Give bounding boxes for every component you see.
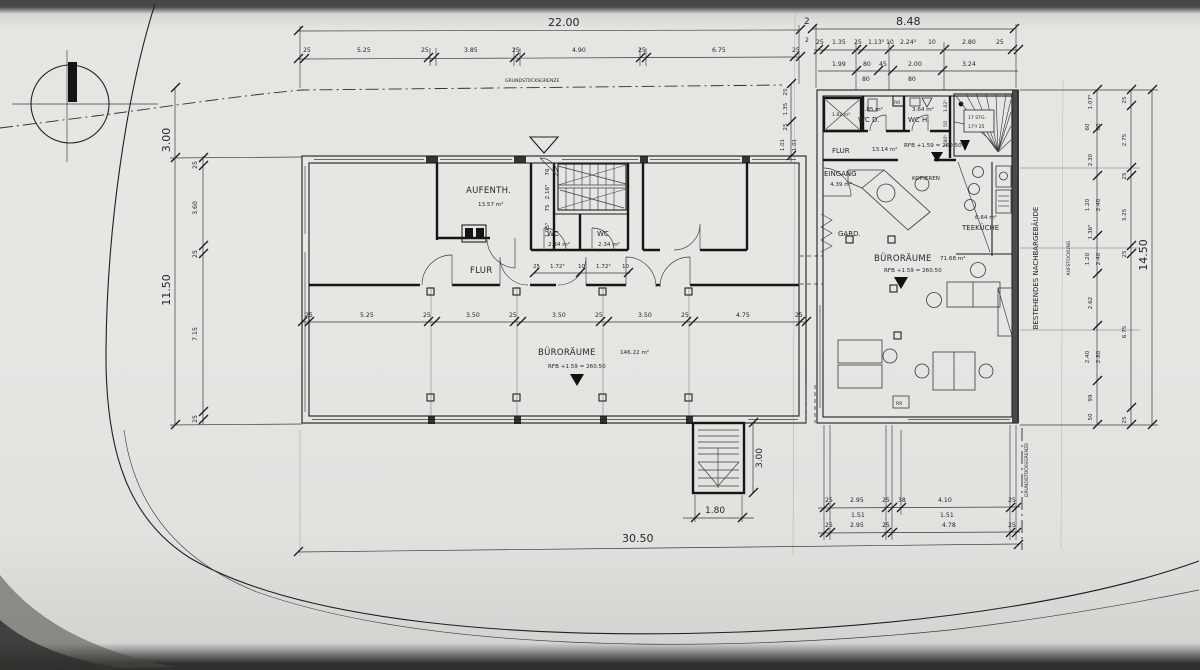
dim-ri-7: 1.20 [1085, 252, 1091, 265]
wc-d-label: WC D. [858, 116, 880, 124]
room-wc2-area: 2.34 m² [598, 241, 620, 248]
dim-3-00-left: 3.00 [160, 128, 173, 153]
level-marker-right [894, 277, 908, 289]
room-buero-right-level: RFB +1.59 = 260.50 [884, 268, 942, 274]
dim-tr3-0: 80 [862, 76, 870, 83]
room-buero-right-area: 71.68 m² [940, 255, 965, 262]
dim-ri-3: 2.30 [1088, 153, 1094, 166]
dim-g-1: 1.35 [783, 102, 789, 115]
dim-c-6: 25 [595, 312, 603, 319]
room-flur-right-area: 13.14 m² [872, 146, 897, 153]
dim-ri-10: 2.40 [1085, 350, 1091, 363]
dim-tl-7: 6.75 [712, 47, 726, 54]
dim-g-3: 1.01 [780, 138, 786, 151]
dim-tl-0: 25 [303, 47, 311, 54]
grenze-top-label: GRUNDSTÜCKSGRENZE [505, 77, 560, 84]
exit-stair: 3.00 1.80 [683, 418, 765, 522]
dim-ro-6: 25 [1122, 416, 1128, 424]
dim-ss-3: 1.95⁵ [544, 223, 551, 238]
dim-br1-0: 25 [825, 497, 833, 504]
dim-tl-1: 5.25 [357, 47, 371, 54]
room-eingang: EINGANG [824, 170, 857, 178]
dim-ro-3: 3.25 [1122, 208, 1128, 221]
neighbor-building-label: BESTEHENDES NACHBARGEBÄUDE [1031, 207, 1040, 330]
teekueche: 6.64 m² TEEKÜCHE [956, 162, 1012, 256]
dim-22-00: 22.00 [548, 16, 580, 29]
dim-br1-1: 2.95 [850, 497, 864, 504]
dim-sr-0: 1.62⁵ [943, 100, 949, 112]
dim-ri-11: 2.80 [1096, 350, 1102, 363]
paper-artifacts [0, 0, 1200, 670]
room-buero-left-level: RFB +1.59 = 260.50 [548, 364, 606, 370]
main-stair-left [558, 164, 626, 210]
dim-br2-2: 25 [882, 522, 890, 529]
floor-plan-photo: GRUNDSTÜCKSGRENZE 22.00 2 2 8.48 25 5.25… [0, 0, 1200, 670]
dim-ri-2: 60 [1096, 123, 1102, 131]
dim-tr-1: 1.35 [832, 39, 846, 46]
room-teekueche: TEEKÜCHE [961, 223, 999, 232]
room-wc2: WC [597, 230, 609, 238]
dim-tr2-1: 80 [863, 61, 871, 68]
dim-14-50: 14.50 [1137, 239, 1150, 271]
dim-wc-0: 25 [533, 264, 541, 270]
dim-tr-7: 2.80 [962, 39, 976, 46]
dim-ri-6: 1.36⁵ [1087, 225, 1094, 240]
room-buero-left-area: 146.22 m² [620, 349, 649, 356]
room-flur-right: FLUR [832, 147, 850, 155]
dim-tr2-0: 1.99 [832, 61, 846, 68]
dim-br1-4: 4.10 [938, 497, 952, 504]
elevator-area: 1.82 m² [832, 112, 850, 118]
room-teekueche-area: 6.64 m² [975, 214, 997, 221]
dims-left: 3.00 11.50 25 3.60 25 7.15 25 [160, 83, 302, 429]
dim-g-2: 25 [783, 123, 789, 131]
room-buero-right: BÜRORÄUME [874, 253, 932, 264]
dim-wc-4: 10 [622, 264, 630, 270]
dim-ri-12: 99 [1088, 394, 1094, 402]
dim-ri-13: 50 [1088, 413, 1094, 421]
dim-sr-1: 50 [943, 121, 949, 127]
dim-g-0: 25 [783, 88, 789, 96]
dim-11-50: 11.50 [160, 274, 173, 306]
aufstockung-label: AUFSTOCKUNG [1066, 240, 1072, 275]
stair-steps-2: 17⁵/ 25 [968, 124, 985, 130]
dim-tr2-3: 2.00 [908, 61, 922, 68]
dim-ri-1: 60 [1085, 123, 1091, 131]
dim-tr-6: 10 [928, 39, 936, 46]
dim-tr-2: 25 [854, 39, 862, 46]
dim-c-10: 25 [795, 312, 803, 319]
dims-bottom-overall: 30.50 [294, 430, 1023, 556]
dim-l-3: 7.15 [192, 327, 199, 341]
dim-br1-5: 25 [1008, 497, 1016, 504]
dim-ro-0: 25 [1122, 96, 1128, 104]
dim-c-2: 25 [423, 312, 431, 319]
rr-top: RR [894, 100, 901, 106]
dim-gap-2: 2 [804, 17, 810, 27]
dim-ro-5: 6.75 [1122, 325, 1128, 338]
room-flur-right-level: RFB +1.59 = 260.50 [904, 143, 962, 149]
dim-ri-0: 1.07⁵ [1087, 95, 1094, 110]
room-flur-left: FLUR [470, 266, 493, 276]
dim-gap-2b: 2 [805, 37, 809, 44]
left-building: AUFENTH. 13.57 m² WC 2.34 m² WC 2.34 m² … [302, 137, 806, 424]
dim-c-0: 25 [305, 312, 313, 319]
dim-ri-8: 2.40 [1096, 252, 1102, 265]
shaft-boxes [462, 225, 486, 242]
dim-ri-5: 2.40 [1096, 198, 1102, 211]
dim-c-9: 4.75 [736, 312, 750, 319]
dims-bottom-right: 25 2.95 25 38 4.10 25 1.51 1.51 25 2.95 … [818, 425, 1030, 550]
dim-tl-4: 25 [512, 47, 520, 54]
dim-tr-5: 2.24⁵ [900, 39, 917, 46]
dim-l-2: 25 [192, 250, 199, 258]
dims-top: 22.00 2 2 8.48 25 5.25 25 3.85 25 4.90 2… [294, 15, 1023, 90]
floor-plan-drawing: GRUNDSTÜCKSGRENZE 22.00 2 2 8.48 25 5.25… [0, 0, 1200, 670]
dim-l-1: 3.60 [192, 201, 199, 215]
dim-ro-1: 2.75 [1122, 133, 1128, 146]
dim-stair-depth: 3.00 [755, 448, 765, 468]
dim-br2-0: 25 [825, 522, 833, 529]
dim-tr-4: 10 [886, 39, 894, 46]
dim-ro-2: 25 [1122, 172, 1128, 180]
dim-tr-3: 1.13⁵ [868, 39, 885, 46]
room-aufenth-area: 13.57 m² [478, 201, 503, 208]
dim-ss-2: 75 [545, 204, 551, 212]
dim-c-7: 3.50 [638, 312, 652, 319]
room-wc1-area: 2.34 m² [548, 241, 570, 248]
dim-tr-8: 25 [996, 39, 1004, 46]
dim-br1-2: 25 [882, 497, 890, 504]
rr-bottom: RR [896, 401, 903, 407]
dim-ss-1: 2.16⁵ [544, 185, 551, 200]
level-marker-left [570, 374, 584, 386]
wc-d-area: 1.85 m² [861, 106, 883, 113]
wc-fixtures: RR [868, 96, 932, 131]
dim-tl-5: 4.90 [572, 47, 586, 54]
dim-8-48: 8.48 [896, 15, 921, 28]
wc-h-label: WC H. [908, 116, 929, 124]
dim-l-4: 25 [192, 415, 199, 423]
dim-c-4: 25 [509, 312, 517, 319]
dim-tr2-2: 45 [879, 61, 887, 68]
dim-br2-1: 2.95 [850, 522, 864, 529]
furniture-right [838, 170, 1012, 390]
dim-br1-3: 38 [898, 497, 906, 504]
dim-c-1: 5.25 [360, 312, 374, 319]
dim-ri-9: 2.62 [1088, 297, 1094, 309]
grenze-right-label: GRUNDSTÜCKSGRENZE [1023, 443, 1030, 498]
dim-30-50: 30.50 [622, 532, 654, 545]
dim-tr-0: 25 [816, 39, 824, 46]
dim-wc-1: 1.72⁵ [550, 263, 565, 270]
dim-c-5: 3.50 [552, 312, 566, 319]
dim-ro-4: 25 [1122, 250, 1128, 258]
dim-ss-0: 76 [545, 168, 551, 176]
dim-wc-2: 10 [578, 264, 586, 270]
dim-l-0: 25 [192, 161, 199, 169]
dim-tl-2: 25 [421, 47, 429, 54]
dim-tr2-4: 3.24 [962, 61, 976, 68]
stair-steps-1: 17 STG. [968, 115, 986, 121]
dim-c-3: 3.50 [466, 312, 480, 319]
dim-tl-6: 25 [638, 47, 646, 54]
wc-h-area: 3.64 m² [912, 106, 934, 113]
dim-wc-3: 1.72⁵ [596, 263, 611, 270]
dim-br1b-0: 1.51 [851, 512, 865, 519]
elevator: 1.82 m² [824, 98, 861, 131]
dims-right: BESTEHENDES NACHBARGEBÄUDE AUFSTOCKUNG 1… [1020, 85, 1158, 429]
right-building: 1.82 m² RR 1.85 m² WC D. 3.64 m² WC H. [817, 90, 1019, 423]
dim-c-8: 25 [681, 312, 689, 319]
property-line-top: GRUNDSTÜCKSGRENZE [0, 77, 782, 128]
room-kopieren: KOPIEREN [912, 176, 940, 182]
entrance-marker [530, 137, 558, 153]
dim-stair-width: 1.80 [705, 506, 725, 516]
dim-ri-4: 1.20 [1085, 198, 1091, 211]
dim-tl-3: 3.85 [464, 47, 478, 54]
dim-g-4: 1.01 [792, 138, 798, 151]
dim-tr3-1: 80 [908, 76, 916, 83]
north-arrow [12, 50, 158, 162]
dim-br2-3: 4.78 [942, 522, 956, 529]
dim-br1b-1: 1.51 [940, 512, 954, 519]
room-buero-left: BÜRORÄUME [538, 347, 596, 358]
room-gard: GARD. [838, 230, 861, 238]
room-aufenth: AUFENTH. [466, 186, 511, 196]
dim-br2-4: 25 [1008, 522, 1016, 529]
